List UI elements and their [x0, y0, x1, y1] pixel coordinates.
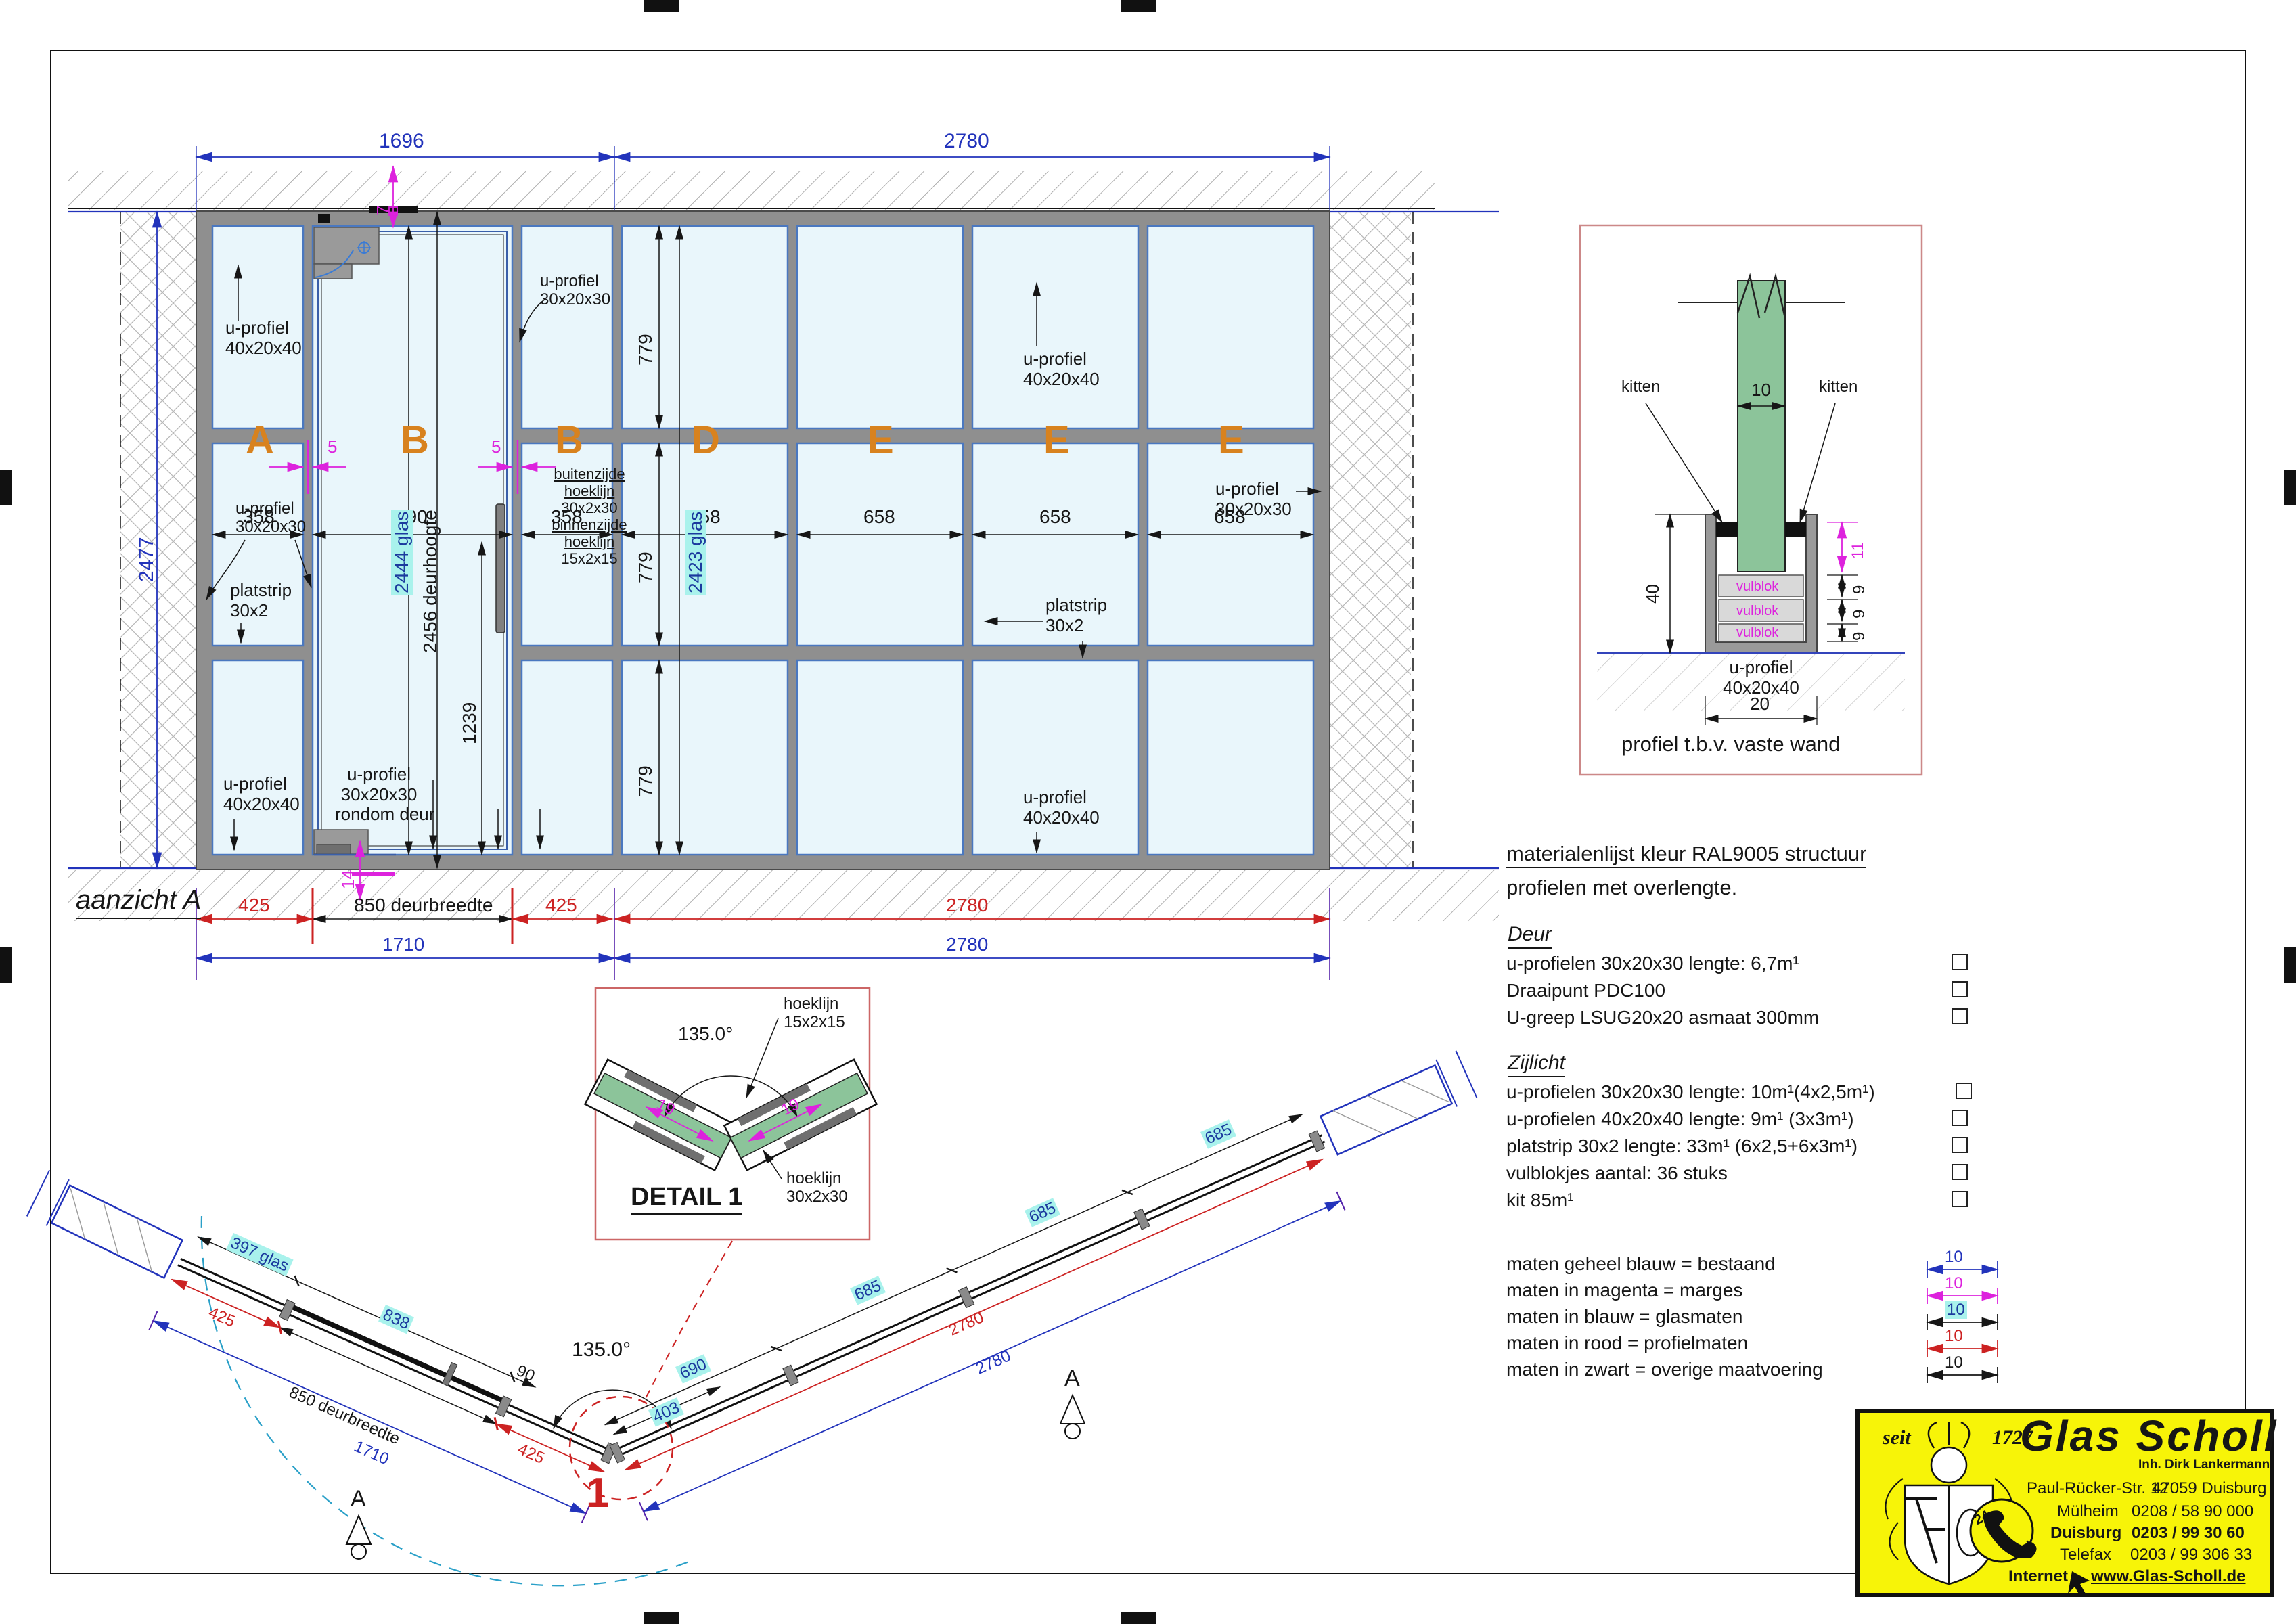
legend-label: maten geheel blauw = bestaand [1506, 1253, 1776, 1275]
materials-header: materialenlijst kleur RAL9005 structuur [1506, 842, 1866, 868]
label-line: hoeklijn [545, 533, 633, 550]
label-uprofiel-40x20x40-top: u-profiel 40x20x40 [1023, 349, 1100, 389]
view-title: aanzicht A [76, 885, 201, 919]
detail1-title: DETAIL 1 [631, 1183, 742, 1215]
plan-wall-right [1319, 1051, 1477, 1159]
label-line: buitenzijde [545, 466, 633, 482]
panel-width: 658 [863, 506, 895, 528]
logo-duisburg: Duisburg [2050, 1524, 2121, 1542]
label-line: 15x2x15 [784, 1013, 845, 1031]
materials-item: u-profielen 40x20x40 lengte: 9m¹ (3x3m¹) [1506, 1108, 1854, 1130]
logo-duisburg-phone: 0203 / 99 30 60 [2132, 1524, 2245, 1542]
label-uprofiel-40x20x40-bottomleft: u-profiel 40x20x40 [223, 774, 300, 814]
materials-item: vulblokjes aantal: 36 stuks [1506, 1163, 1728, 1184]
legend-label: maten in blauw = glasmaten [1506, 1306, 1742, 1328]
label-line: 40x20x40 [1023, 369, 1100, 390]
label-line: 30x20x30 [335, 785, 423, 805]
plan-left-wing [149, 1230, 627, 1522]
label-uprofiel-30x20x30-left: u-profiel 30x20x30 [235, 499, 306, 537]
label-line: 15x2x15 [545, 550, 633, 567]
dim-1710: 1710 [382, 934, 424, 955]
elevation-view [68, 146, 1499, 980]
dim-20: 20 [1750, 694, 1770, 715]
label-line: 30x2x30 [545, 499, 633, 516]
label-uprofiel-30x20x30-right: u-profiel 30x20x30 [1215, 479, 1292, 519]
panel-letter: B [555, 418, 583, 463]
label-line: platstrip [1045, 595, 1107, 616]
label-vulblok: vulblok [1736, 604, 1778, 619]
margin-bottom: 14 [338, 870, 359, 889]
checkbox [1952, 1008, 1968, 1024]
label-hoeklijn-30x2x30: hoeklijn 30x2x30 [786, 1169, 848, 1206]
glass-dim-side: 2423 glas [685, 510, 706, 595]
dim-2780-red: 2780 [946, 895, 988, 916]
plan-angle: 135.0° [572, 1338, 631, 1361]
label-uprofiel-30x20x30-top: u-profiel 30x20x30 [540, 272, 610, 309]
label-line: u-profiel [335, 765, 423, 785]
legend-label: maten in zwart = overige maatvoering [1506, 1359, 1823, 1380]
label-line: rondom deur [335, 805, 423, 825]
legend-sample-value: 10 [1945, 1327, 1963, 1345]
detail1-angle: 135.0° [678, 1023, 733, 1045]
checkbox [1952, 1137, 1968, 1153]
label-line: 30x20x30 [1215, 499, 1292, 520]
label-line: 30x2 [230, 601, 292, 621]
checkbox [1952, 981, 1968, 997]
logo-website: www.Glas-Scholl.de [2091, 1567, 2246, 1585]
row-dim: 779 [635, 551, 656, 583]
drawing-sheet: 1696 2780 2477 A B B D E E E 358 790 358… [0, 0, 2296, 1624]
label-uprofiel-40x20x40-detail: u-profiel 40x20x40 [1719, 658, 1803, 698]
dim-left-height: 2477 [135, 537, 158, 582]
glass-panels [212, 226, 1313, 855]
materials-item: U-greep LSUG20x20 asmaat 300mm [1506, 1007, 1819, 1029]
view-arrow-a-right [1060, 1395, 1085, 1424]
label-line: 40x20x40 [223, 794, 300, 815]
label-line: u-profiel [223, 774, 300, 794]
panel-letter: D [692, 418, 720, 463]
label-line: u-profiel [235, 499, 306, 518]
label-line: u-profiel [540, 272, 610, 290]
label-uprofiel-40x20x40-topleft: u-profiel 40x20x40 [225, 318, 302, 358]
dim-glass-10: 10 [1751, 380, 1771, 401]
panel-letter: E [1218, 418, 1244, 463]
dim-door-width: 850 deurbreedte [354, 895, 493, 916]
logo-owner: Inh. Dirk Lankermann [2138, 1458, 2270, 1472]
legend-sample-value: 10 [1945, 1248, 1963, 1266]
dim-top-right: 2780 [944, 130, 989, 153]
checkbox [1952, 1191, 1968, 1207]
row-dim: 779 [635, 765, 656, 797]
margin-left: 5 [328, 437, 337, 457]
label-line: hoeklijn [786, 1169, 848, 1188]
dim-9: 9 [1850, 632, 1868, 641]
dim-top-left: 1696 [379, 130, 424, 153]
logo-internet: Internet [2008, 1567, 2068, 1585]
label-line: u-profiel [1023, 788, 1100, 808]
materials-subheader: profielen met overlengte. [1506, 876, 1737, 899]
view-arrow-a-left [346, 1516, 371, 1544]
label-line: u-profiel [1215, 479, 1292, 499]
checkbox [1952, 1110, 1968, 1126]
detail-marker-number: 1 [586, 1470, 609, 1518]
label-line: 40x20x40 [1023, 808, 1100, 828]
panel-width: 658 [1039, 506, 1071, 528]
label-hoeklijn-15x2x15: hoeklijn 15x2x15 [784, 995, 845, 1032]
logo-muelheim-phone: 0208 / 58 90 000 [2132, 1502, 2253, 1520]
view-arrow-label: A [1064, 1366, 1080, 1392]
label-uprofiel-40x20x40-bottom: u-profiel 40x20x40 [1023, 788, 1100, 828]
logo-city: 47059 Duisburg [2152, 1479, 2266, 1497]
checkbox [1952, 1164, 1968, 1180]
logo-muelheim: Mülheim [2057, 1502, 2119, 1520]
legend-label: maten in rood = profielmaten [1506, 1332, 1748, 1354]
detail-wall-title: profiel t.b.v. vaste wand [1621, 732, 1840, 756]
label-hoeklijn-block: buitenzijde hoeklijn 30x2x30 binnenzijde… [545, 466, 633, 567]
label-line: 30x2x30 [786, 1188, 848, 1206]
materials-item: u-profielen 30x20x30 lengte: 6,7m¹ [1506, 953, 1799, 974]
dim-425-left: 425 [238, 895, 270, 916]
door-height-dim: 2456 deurhoogte [420, 510, 441, 653]
materials-item: u-profielen 30x20x30 lengte: 10m¹(4x2,5m… [1506, 1081, 1875, 1103]
panel-letter: E [868, 418, 894, 463]
dim-425-right: 425 [545, 895, 577, 916]
logo-telefax-number: 0203 / 99 306 33 [2130, 1546, 2252, 1564]
label-line: 40x20x40 [225, 338, 302, 359]
label-platstrip-left: platstrip 30x2 [230, 581, 292, 621]
view-arrow-label: A [351, 1486, 366, 1512]
panel-letter: A [246, 418, 274, 463]
dim-2780-blue: 2780 [946, 934, 988, 955]
label-line: 30x2 [1045, 616, 1107, 636]
materials-item: kit 85m¹ [1506, 1190, 1574, 1211]
label-line: hoeklijn [784, 995, 845, 1013]
label-line: 30x20x30 [540, 290, 610, 309]
margin-right: 5 [491, 437, 501, 457]
panel-letter: B [401, 418, 429, 463]
handle-height-dim: 1239 [459, 702, 480, 744]
dim-40: 40 [1643, 584, 1663, 604]
logo-seit: seit [1883, 1426, 1911, 1449]
glass-dim-door: 2444 glas [391, 510, 413, 595]
dim-11: 11 [1849, 542, 1867, 559]
legend-sample-value: 10 [1945, 1274, 1963, 1292]
dim-9: 9 [1850, 610, 1868, 618]
legend-label: maten in magenta = marges [1506, 1280, 1742, 1301]
checkbox [1956, 1083, 1972, 1099]
label-line: u-profiel [1023, 349, 1100, 369]
checkbox [1952, 954, 1968, 970]
label-line: u-profiel [1719, 658, 1803, 678]
materials-deur-heading: Deur [1508, 923, 1552, 949]
label-kitten-left: kitten [1621, 378, 1660, 396]
logo-brand: Glas Scholl [2020, 1412, 2278, 1461]
label-vulblok: vulblok [1736, 625, 1778, 641]
label-vulblok: vulblok [1736, 579, 1778, 595]
panel-letter: E [1043, 418, 1070, 463]
logo-street: Paul-Rücker-Str. 12 [2027, 1479, 2168, 1497]
margin-top: 7 [374, 206, 394, 215]
glass-section [1738, 281, 1785, 572]
materials-zijlicht-heading: Zijlicht [1508, 1052, 1565, 1077]
row-dim: 779 [635, 334, 656, 365]
materials-item: platstrip 30x2 lengte: 33m¹ (6x2,5+6x3m¹… [1506, 1135, 1858, 1157]
label-line: 30x20x30 [235, 518, 306, 536]
legend-sample-value: 10 [1945, 1353, 1963, 1372]
dim-9: 9 [1850, 585, 1868, 594]
label-rondom-deur: u-profiel 30x20x30 rondom deur [335, 765, 423, 825]
door-handle [496, 504, 505, 633]
label-line: platstrip [230, 581, 292, 601]
label-line: u-profiel [225, 318, 302, 338]
legend-sample-value: 10 [1945, 1301, 1967, 1319]
label-kitten-right: kitten [1819, 378, 1858, 396]
label-line: binnenzijde [545, 516, 633, 533]
logo-telefax: Telefax [2060, 1546, 2111, 1564]
materials-item: Draaipunt PDC100 [1506, 980, 1665, 1001]
label-platstrip-right: platstrip 30x2 [1045, 595, 1107, 635]
label-line: hoeklijn [545, 482, 633, 499]
